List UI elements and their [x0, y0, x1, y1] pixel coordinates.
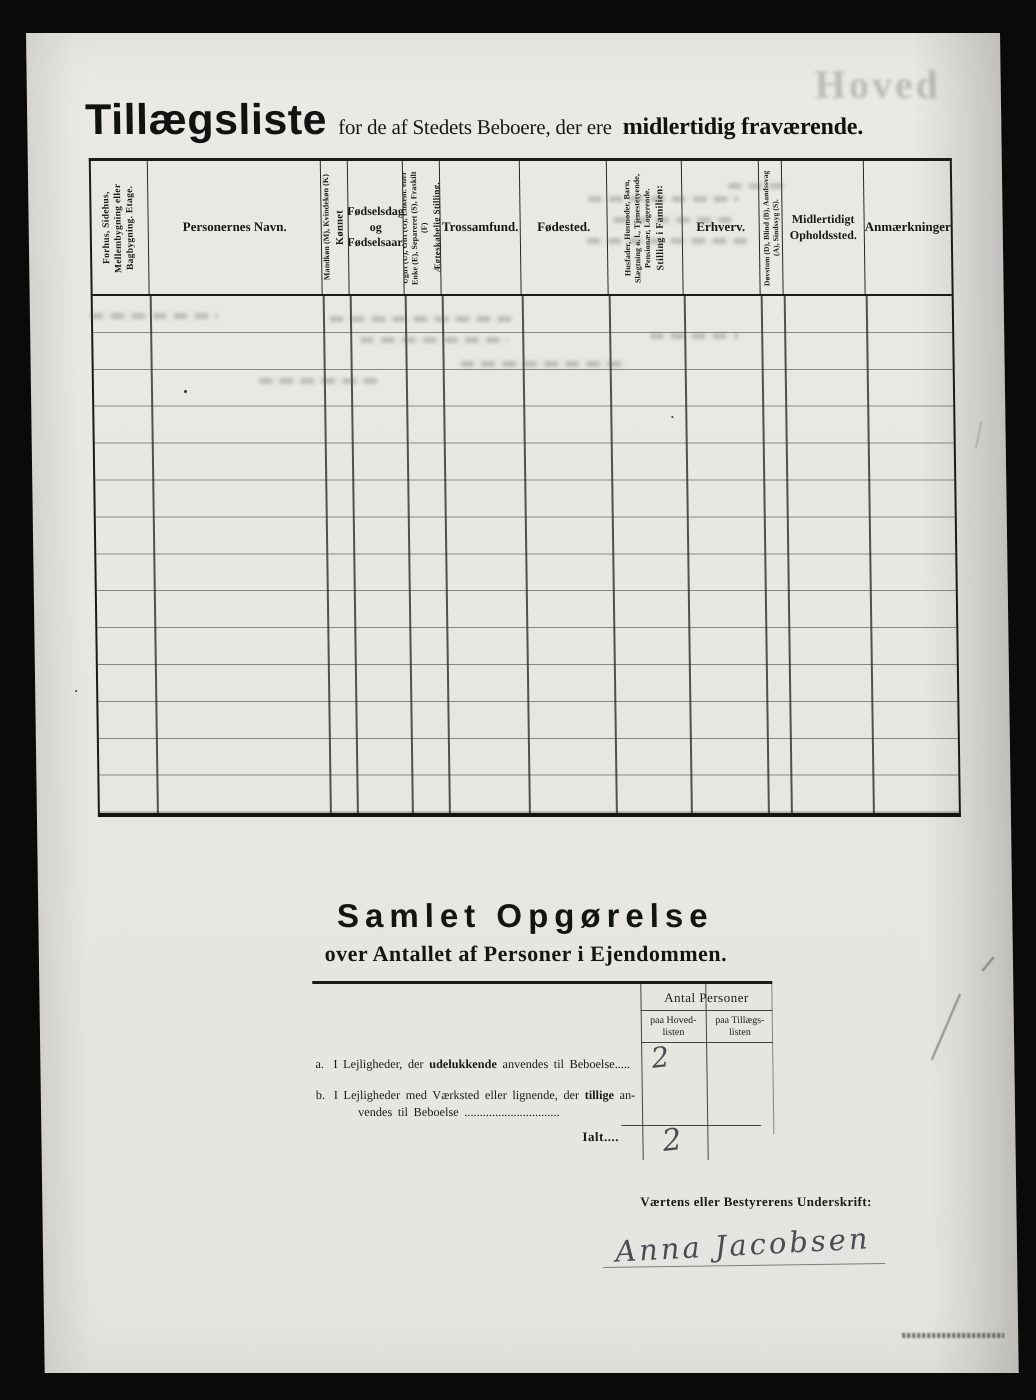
column-header-faith-label: Trossamfund. [442, 219, 519, 236]
bleed-through-smear [728, 183, 788, 189]
summary-row-a-text1: I Lejligheder, der [333, 1057, 423, 1071]
summary-row-a-dots: ..... [615, 1057, 631, 1071]
column-header-building-label: Forhus, Sidehus, Mellembygning eller Bag… [101, 166, 138, 290]
bleed-through-smear [588, 196, 738, 202]
bleed-through-smear [90, 313, 218, 319]
column-line [323, 296, 332, 813]
summary-total-dots: .... [604, 1129, 619, 1144]
column-line [866, 296, 875, 813]
summary-col-hovedlisten: paa Hoved- listen [641, 1015, 706, 1039]
summary-row-a: a.I Lejligheder, der udelukkende anvende… [315, 1056, 641, 1073]
column-line [761, 296, 770, 813]
summary-row-b-text1: I Lejligheder med Værksted eller lignend… [334, 1088, 579, 1102]
column-header-disability: Døvstum (D), Blind (B), Aandssvag (A), S… [759, 161, 784, 294]
column-line [784, 296, 793, 813]
summary-total-divider [621, 1125, 761, 1126]
column-header-family-position-sublabel: Husfader, Husmoder, Barn, Slægtning o. l… [622, 166, 654, 290]
summary-count-header: Antal Personer [640, 991, 772, 1004]
column-header-sex-sublabel: Mandkøn (M), Kvindekøn (K) [321, 174, 332, 280]
column-header-name: Personernes Navn. [148, 161, 323, 294]
census-table: Forhus, Sidehus, Mellembygning eller Bag… [89, 158, 961, 817]
scanned-form-page: Hoved Tillægsliste for de af Stedets Beb… [26, 33, 1019, 1373]
column-header-occupation: Erhverv. [682, 161, 761, 294]
column-header-marital: Ugift (U), Gift (G), Enkem. eller Enke (… [403, 161, 442, 294]
ink-speck [75, 690, 77, 692]
bleed-through-smear [259, 378, 377, 384]
ink-speck [671, 416, 673, 418]
summary-total-value-handwritten: 2 [661, 1125, 684, 1157]
summary-row-b-index: b. [316, 1087, 334, 1104]
column-header-faith: Trossamfund. [440, 161, 522, 294]
column-header-temporary-residence-label: Midlertidigt Opholdssted. [784, 212, 861, 243]
column-header-sex-label: Kønnet [334, 210, 348, 245]
pen-flourish [931, 994, 961, 1061]
column-header-birthdate-label: Fødselsdag og Fødselsaar. [348, 204, 405, 251]
column-line [442, 296, 451, 813]
summary-row-b: b.I Lejligheder med Værksted eller ligne… [316, 1087, 646, 1120]
summary-row-b-dots: ............................... [464, 1105, 560, 1119]
summary-row-b-text2: an- [620, 1088, 636, 1102]
pen-flourish [975, 421, 982, 449]
column-line [350, 296, 359, 813]
form-subtitle-bold: midlertidig fraværende. [623, 115, 864, 139]
column-header-sex: Mandkøn (M), Kvindekøn (K) Kønnet [321, 161, 350, 294]
column-header-remarks: Anmærkninger [864, 161, 952, 294]
form-title-row: Tillægsliste for de af Stedets Beboere, … [85, 99, 863, 142]
census-table-body-empty-rows [93, 296, 959, 813]
summary-table: Antal Personer paa Hoved- listen paa Til… [312, 981, 775, 1190]
bleed-through-smear [461, 361, 629, 367]
column-header-birthplace: Fødested. [520, 161, 609, 294]
column-header-marital-sublabel: Ugift (U), Gift (G), Enkem. eller Enke (… [403, 166, 431, 290]
summary-total-label: Ialt.... [582, 1130, 619, 1143]
ink-speck [184, 390, 187, 393]
column-header-temporary-residence: Midlertidigt Opholdssted. [782, 161, 866, 294]
column-header-birthdate: Fødselsdag og Fødselsaar. [348, 161, 405, 294]
bleed-through-smear [587, 238, 747, 244]
summary-row-a-bold: udelukkende [429, 1057, 497, 1071]
column-header-family-position: Husfader, Husmoder, Barn, Slægtning o. l… [607, 161, 684, 294]
printer-mark-illegible [902, 1333, 1004, 1338]
summary-title: Samlet Opgørelse [38, 899, 1012, 932]
column-header-birthplace-label: Fødested. [537, 219, 590, 236]
bleed-through-smear [330, 316, 512, 322]
column-header-name-label: Personernes Navn. [183, 219, 287, 236]
form-title: Tillægsliste [85, 99, 327, 142]
summary-row-a-index: a. [315, 1056, 333, 1073]
column-header-building: Forhus, Sidehus, Mellembygning eller Bag… [91, 161, 150, 294]
summary-col-tillaegslisten: paa Tillægs- listen [707, 1015, 773, 1039]
column-line [609, 296, 618, 813]
summary-row-b-bold: tillige [585, 1088, 615, 1102]
signature-handwritten-name: Anna Jacobsen [614, 1224, 871, 1266]
signature-label: Værtens eller Bestyrerens Underskrift: [640, 1195, 872, 1208]
column-line [522, 296, 531, 813]
summary-subtitle: over Antallet af Personer i Ejendommen. [39, 943, 1013, 965]
column-line [405, 296, 414, 813]
bleed-through-smear [614, 217, 732, 223]
bleed-through-smear [360, 337, 508, 343]
summary-column-line [771, 984, 774, 1134]
column-header-remarks-label: Anmærkninger [865, 219, 951, 236]
bleed-through-smear [650, 333, 738, 339]
summary-row-a-value-handwritten: 2 [650, 1043, 671, 1073]
column-line [150, 296, 159, 813]
column-line [684, 296, 693, 813]
summary-total-label-text: Ialt [582, 1129, 604, 1144]
summary-divider [641, 1010, 773, 1011]
form-subtitle: for de af Stedets Beboere, der ere [338, 117, 612, 138]
summary-row-b-text3: vendes til Beboelse [358, 1105, 459, 1119]
summary-row-a-text2: anvendes til Beboelse [502, 1057, 614, 1071]
census-table-header: Forhus, Sidehus, Mellembygning eller Bag… [91, 161, 952, 296]
